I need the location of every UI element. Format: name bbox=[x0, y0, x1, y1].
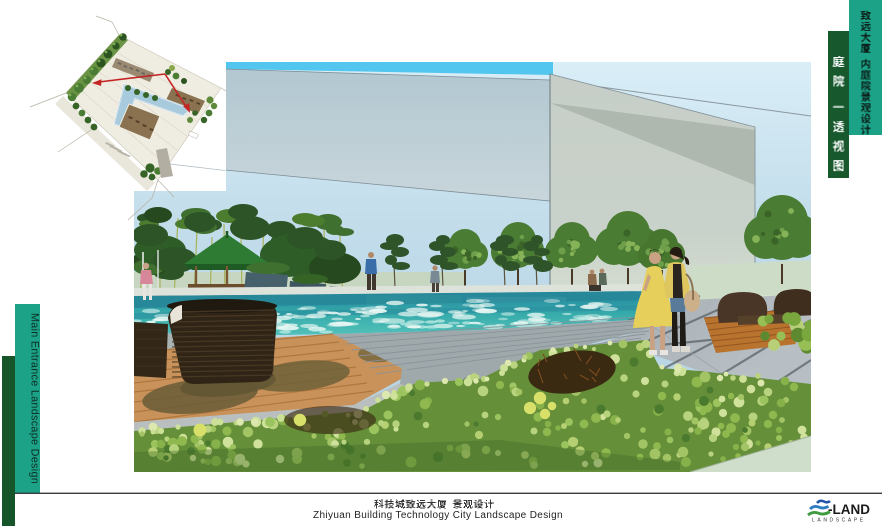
svg-text:Main Entrance Landscape Design: Main Entrance Landscape Design bbox=[29, 313, 41, 484]
svg-text:Zhiyuan Building Technology Ci: Zhiyuan Building Technology City Landsca… bbox=[313, 510, 563, 521]
svg-text:-LAND: -LAND bbox=[828, 502, 870, 517]
svg-text:LANDSCAPE: LANDSCAPE bbox=[812, 518, 866, 524]
